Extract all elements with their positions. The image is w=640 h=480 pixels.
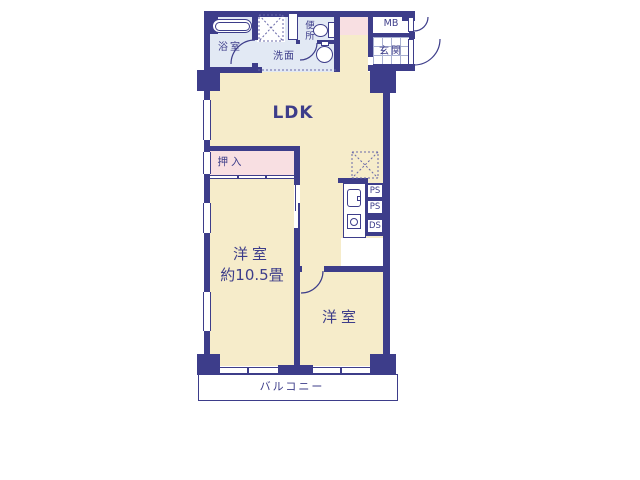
wall-hall-left bbox=[334, 11, 340, 72]
wall-right-seg2 bbox=[409, 32, 415, 39]
hall-floor-cream bbox=[340, 35, 368, 72]
toilet-cabinet bbox=[288, 13, 298, 40]
bathroom-label: 浴室 bbox=[211, 42, 249, 54]
pillar-top-right bbox=[370, 71, 396, 93]
bedroom1-sliding-door-panel bbox=[298, 203, 300, 228]
ds-label: DS bbox=[368, 222, 382, 232]
bathtub-inner bbox=[215, 22, 250, 31]
mb-door-arc bbox=[414, 17, 428, 31]
toilet-label: 便所 bbox=[300, 15, 313, 45]
window-ldk-left bbox=[203, 100, 211, 140]
closet-sliding-door bbox=[210, 175, 294, 179]
balcony-label: バルコニー bbox=[240, 381, 344, 394]
bedroom1-size-label: 約10.5畳 bbox=[196, 267, 308, 284]
floor-plan: LDK 浴室 洗面 便所 MB 玄関 押入 洋室 約10.5畳 洋室 PS PS… bbox=[0, 0, 640, 480]
bedroom1-label: 洋室 bbox=[200, 246, 304, 263]
washbasin-icon bbox=[316, 46, 333, 63]
wall-mb-bottom bbox=[373, 33, 409, 37]
bedroom2-label: 洋室 bbox=[306, 309, 376, 326]
pillar-bottom-left bbox=[197, 354, 220, 375]
toilet-bowl-icon bbox=[313, 24, 328, 37]
entrance-label: 玄関 bbox=[374, 46, 408, 58]
wall-bottom-center-block bbox=[278, 365, 313, 374]
toilet-tank-icon bbox=[328, 22, 335, 38]
window-tick bbox=[340, 367, 342, 374]
wall-closet-top bbox=[204, 146, 300, 151]
window-bedroom1-balcony bbox=[220, 367, 278, 374]
wall-right-seg3 bbox=[409, 65, 415, 71]
ps2-label: PS bbox=[368, 203, 382, 213]
wall-bath-right-upper bbox=[252, 17, 258, 40]
wall-right-main bbox=[383, 93, 390, 375]
hall-floor-pink bbox=[340, 17, 368, 35]
window-closet-left bbox=[203, 152, 211, 174]
kitchen-faucet-icon bbox=[357, 196, 361, 201]
meter-box-label: MB bbox=[377, 19, 405, 30]
wall-entrance-left bbox=[368, 17, 373, 57]
entrance-door-arc bbox=[414, 39, 440, 65]
entrance-door-leaf bbox=[408, 39, 414, 65]
window-bedroom1-left-lower bbox=[203, 292, 211, 331]
stove-burner-icon bbox=[350, 218, 358, 226]
ps1-label: PS bbox=[368, 187, 382, 197]
washroom-label: 洗面 bbox=[266, 51, 302, 63]
ldk-label: LDK bbox=[265, 104, 321, 124]
window-tick bbox=[247, 367, 249, 374]
bedroom1-sliding-door-panel bbox=[295, 185, 297, 211]
closet-label: 押入 bbox=[213, 156, 249, 168]
window-bedroom1-left-upper bbox=[203, 203, 211, 233]
kitchen-floor-white bbox=[341, 238, 383, 266]
wall-bedroom2-top bbox=[324, 266, 390, 272]
sliding-door-tick bbox=[237, 175, 239, 179]
pillar-top-left bbox=[197, 70, 220, 91]
washer-pan-bg bbox=[257, 13, 285, 42]
pillar-bottom-right bbox=[370, 354, 396, 375]
mb-door-leaf bbox=[408, 17, 414, 32]
sliding-door-tick bbox=[265, 175, 267, 179]
wall-bath-right-lower bbox=[252, 63, 258, 67]
